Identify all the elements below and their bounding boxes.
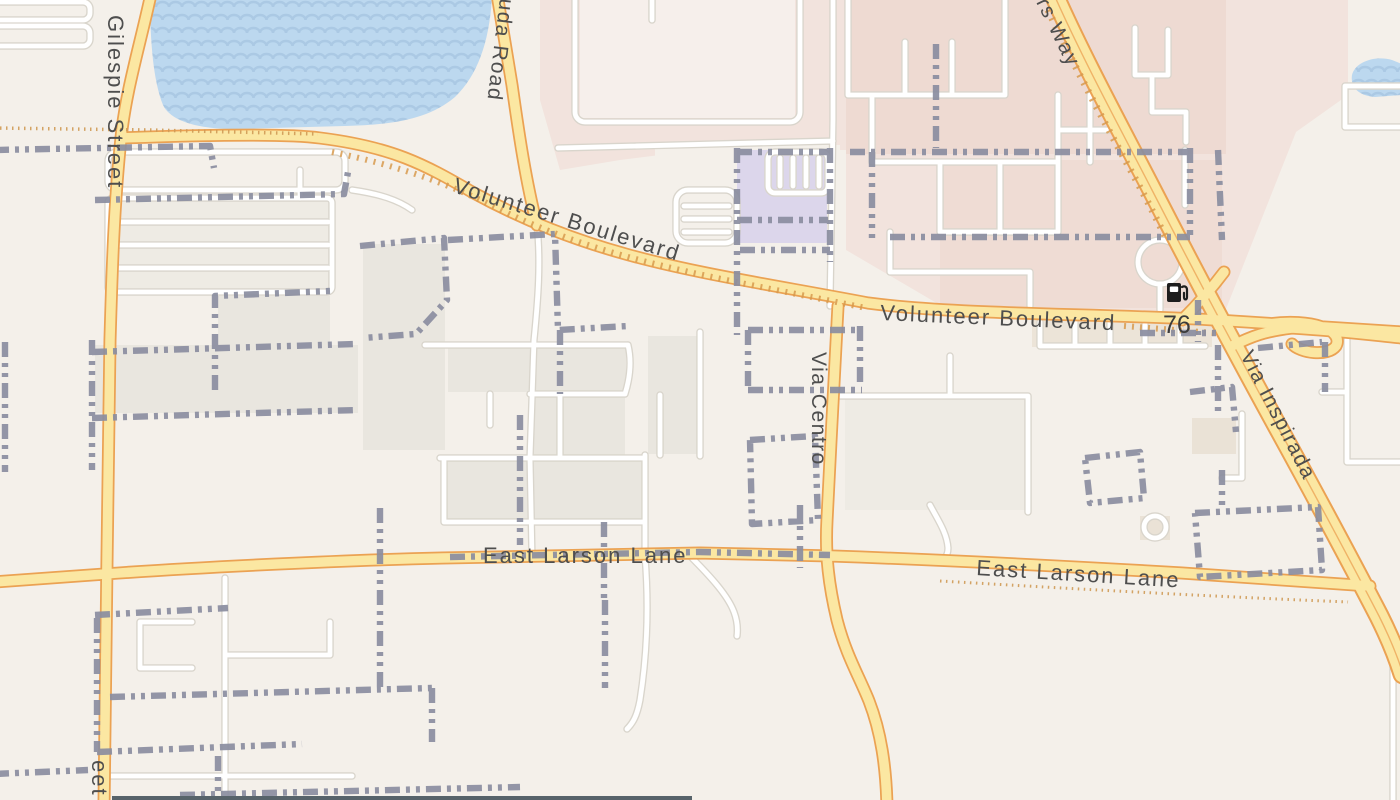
gilespie-street-label-partial: eet [87, 760, 112, 797]
fuel-pump-icon [1167, 283, 1187, 302]
gilespie-street-label: Gilespie Street [103, 15, 128, 189]
east-larson-lane-label-west: East Larson Lane [483, 543, 687, 568]
map-canvas[interactable]: Gilespie Street eet uda Road rs Way Volu… [0, 0, 1400, 800]
gas-station-label: 76 [1163, 311, 1191, 339]
gas-station-poi: 76 [1163, 283, 1191, 339]
via-centro-label: Via Centro [807, 352, 830, 466]
